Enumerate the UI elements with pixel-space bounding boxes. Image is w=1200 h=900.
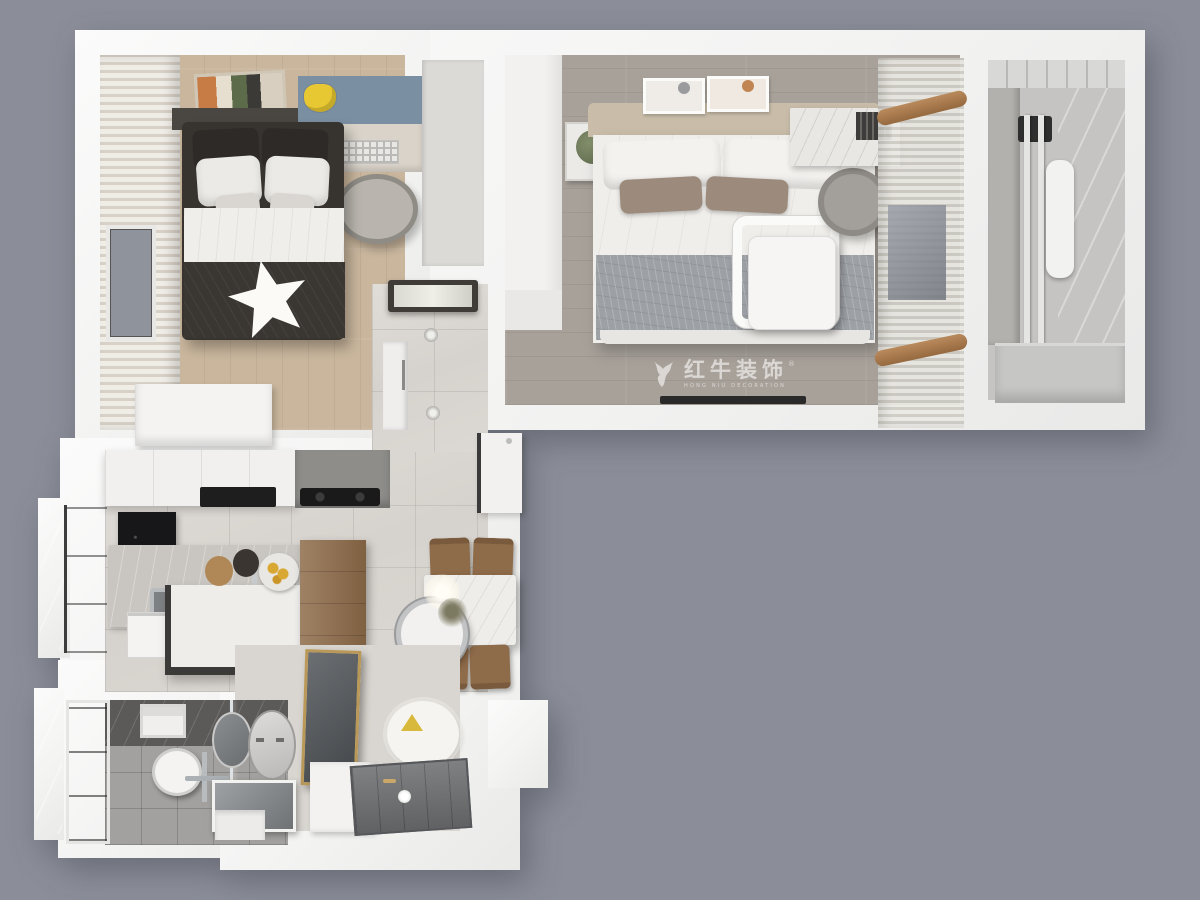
wood-serving-board <box>205 556 233 586</box>
range-hood <box>200 487 276 507</box>
door-handle <box>383 779 396 783</box>
kids-dresser <box>135 384 272 446</box>
hallway-spotlight-2 <box>426 406 440 420</box>
entry-round-rug <box>387 701 459 767</box>
gas-burners <box>300 488 380 506</box>
door-peephole <box>398 790 411 803</box>
master-art-frame-right <box>707 76 769 112</box>
dark-bowl <box>233 549 259 577</box>
side-table-inner <box>748 236 836 330</box>
tv-strip <box>660 396 806 404</box>
hallway-cabinet-handle <box>402 360 405 390</box>
kitchen-bay-window <box>40 505 64 651</box>
dining-cabinet-knob <box>506 438 512 444</box>
entry-door <box>350 758 473 836</box>
bathroom-oval-mirror <box>212 712 252 768</box>
kitchen-dishwasher <box>127 612 167 658</box>
kids-window <box>106 225 156 341</box>
kids-desk-chair <box>336 174 418 244</box>
master-window-pane <box>888 205 946 300</box>
wall-entry-bump <box>488 700 548 788</box>
art-dot-left <box>678 82 690 94</box>
watermark-title: 红牛装饰 <box>684 358 788 382</box>
toilet <box>248 710 296 780</box>
master-pillow-taupe-right <box>705 176 789 214</box>
rain-shower-head <box>152 748 202 796</box>
art-dot-right <box>742 80 754 92</box>
balcony-heater-panel <box>1046 160 1074 278</box>
hallway-spotlight-1 <box>424 328 438 342</box>
floorplan-render: 红牛装饰® HONG NIU DECORATION <box>0 0 1200 900</box>
bathroom-bay-glass <box>36 694 62 834</box>
balcony-top-frame <box>988 60 1125 88</box>
pikachu-toy <box>304 84 336 112</box>
bathroom-niche-shelf <box>140 704 186 738</box>
master-bed-footer-sheet <box>600 330 870 344</box>
dining-chair-bottom-right <box>469 644 511 689</box>
table-centerpiece-plant <box>438 598 468 628</box>
drying-rack-pole-left <box>1024 115 1030 350</box>
watermark-subtitle: HONG NIU DECORATION <box>684 383 795 389</box>
bull-icon <box>648 357 678 391</box>
dining-wall-cabinet <box>477 433 522 513</box>
bathroom-step <box>215 810 265 840</box>
kitchen-window-inner <box>64 505 107 653</box>
fruit-plate <box>259 553 299 591</box>
master-pillow-taupe-left <box>619 176 703 214</box>
kids-wardrobe-column <box>422 60 484 266</box>
balcony-side-wall <box>988 60 1020 345</box>
balcony-cabinet <box>995 343 1125 403</box>
master-art-frame-left <box>643 78 705 114</box>
toilet-lid-hinges <box>256 738 284 742</box>
watermark-registered: ® <box>788 360 795 368</box>
bathroom-window <box>66 700 110 844</box>
hallway-ceiling-light-glass <box>394 285 472 307</box>
drying-rack-pole-right <box>1038 115 1044 350</box>
kids-white-duvet <box>184 208 344 268</box>
master-wardrobe <box>505 55 562 330</box>
watermark: 红牛装饰® HONG NIU DECORATION <box>648 352 818 396</box>
